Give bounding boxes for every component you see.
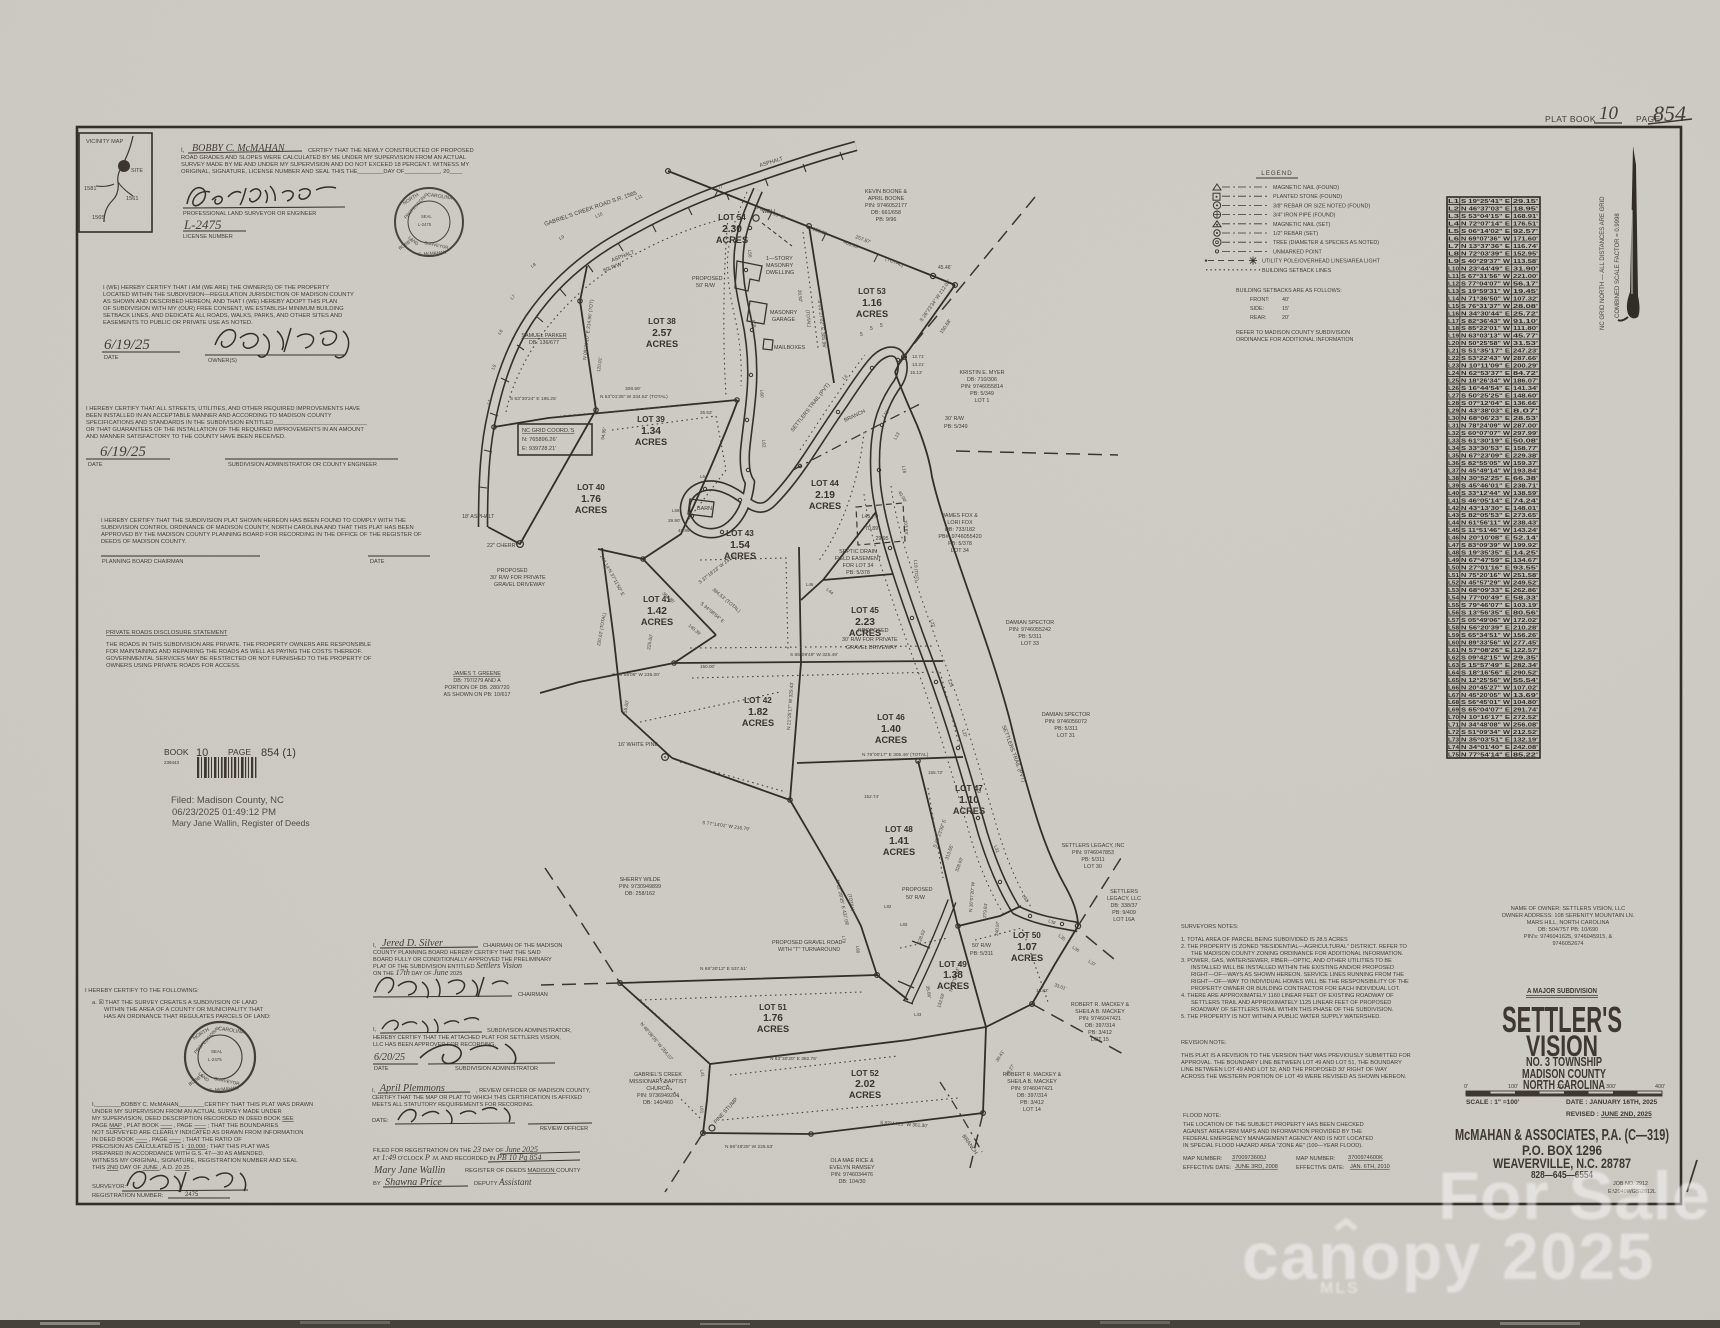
- svg-text:ACRES: ACRES: [575, 505, 607, 515]
- svg-text:LOT 30: LOT 30: [1084, 864, 1102, 870]
- svg-text:70.89': 70.89': [865, 526, 879, 532]
- svg-text:1.34: 1.34: [641, 426, 661, 437]
- svg-text:LOT 39: LOT 39: [637, 415, 665, 424]
- svg-text:PRECISION AS CALCULATED IS 1:: PRECISION AS CALCULATED IS 1: 10,000 ; T…: [92, 1144, 270, 1150]
- svg-text:BY: BY: [373, 1181, 381, 1187]
- svg-text:S 63°30'24" E 195.25': S 63°30'24" E 195.25': [510, 396, 557, 402]
- svg-text:1.82: 1.82: [748, 707, 768, 718]
- svg-text:LOT 52: LOT 52: [851, 1069, 879, 1078]
- svg-text:6/19/25: 6/19/25: [104, 337, 150, 353]
- svg-text:SURVEYORS NOTES:: SURVEYORS NOTES:: [1181, 924, 1239, 930]
- svg-text:L43: L43: [914, 1012, 922, 1017]
- svg-text:KRISTIN E. MYER: KRISTIN E. MYER: [960, 370, 1005, 376]
- svg-text:PLAT BOOK: PLAT BOOK: [1545, 114, 1596, 124]
- svg-text:Mary Jane Wallin, Register of: Mary Jane Wallin, Register of Deeds: [172, 818, 310, 828]
- svg-text:1.10: 1.10: [959, 795, 979, 806]
- svg-text:20': 20': [1282, 315, 1289, 321]
- svg-text:GARAGE: GARAGE: [772, 317, 795, 323]
- svg-text:SETTLERS TRAIL AND APPROXIMATE: SETTLERS TRAIL AND APPROXIMATELY 1125 LI…: [1191, 1000, 1391, 1006]
- svg-text:25.53': 25.53': [700, 410, 712, 415]
- svg-text:ACRES: ACRES: [641, 617, 673, 627]
- svg-text:DATE: DATE: [370, 559, 385, 565]
- svg-text:FRONT:: FRONT:: [1250, 297, 1269, 303]
- svg-text:DB: 397/314: DB: 397/314: [1017, 1093, 1047, 1099]
- svg-text:LOT 51: LOT 51: [759, 1003, 787, 1012]
- svg-text:L46: L46: [806, 582, 814, 587]
- svg-text:1/2" REBAR (SET): 1/2" REBAR (SET): [1273, 231, 1318, 237]
- svg-text:L61: L61: [699, 1106, 705, 1114]
- svg-text:1.54: 1.54: [730, 540, 750, 551]
- svg-text:WITHIN THE AREA OF A COUNTY OR: WITHIN THE AREA OF A COUNTY OR MUNICIPAL…: [104, 1007, 264, 1013]
- svg-text:APPROVAL. THE BOUNDARY LINE BE: APPROVAL. THE BOUNDARY LINE BETWEEN LOT …: [1181, 1060, 1402, 1066]
- svg-text:DB: 733/182: DB: 733/182: [945, 527, 975, 533]
- svg-text:LOT 49: LOT 49: [939, 960, 967, 969]
- svg-text:LOT 53: LOT 53: [858, 287, 886, 296]
- svg-text:PLANTED STONE (FOUND): PLANTED STONE (FOUND): [1273, 194, 1342, 200]
- svg-text:SHEILA B. MACKEY: SHEILA B. MACKEY: [1075, 1009, 1125, 1015]
- svg-text:50' R/W: 50' R/W: [906, 895, 926, 901]
- svg-text:REFER TO MADISON COUNTY SUBDIV: REFER TO MADISON COUNTY SUBDIVISION: [1236, 330, 1350, 336]
- svg-text:PIN: 9746056072: PIN: 9746056072: [1045, 719, 1087, 725]
- svg-text:PB: 5/349: PB: 5/349: [970, 391, 994, 397]
- svg-text:N 63°01'35" W 334.52' (TOTAL: N 63°01'35" W 334.52' (TOTAL): [600, 394, 668, 400]
- svg-text:LEGACY, LLC: LEGACY, LLC: [1107, 896, 1141, 902]
- svg-text:I (WE) HEREBY CERTIFY THAT I A: I (WE) HEREBY CERTIFY THAT I AM (WE ARE)…: [103, 285, 329, 291]
- svg-text:103.83': 103.83': [903, 520, 909, 535]
- svg-text:SPECIFICATIONS AND STANDARDS I: SPECIFICATIONS AND STANDARDS IN THE SUBD…: [86, 420, 368, 426]
- svg-text:PIN: 9746055242: PIN: 9746055242: [1009, 627, 1051, 633]
- svg-text:ROBERT R. MACKEY &: ROBERT R. MACKEY &: [1071, 1002, 1130, 1008]
- svg-text:ROADWAY OF SETTLERS TRAIL WITH: ROADWAY OF SETTLERS TRAIL WITHIN THIS PH…: [1191, 1007, 1394, 1013]
- svg-text:I,: I,: [372, 1088, 376, 1094]
- svg-text:PAGE MAP , PLAT BOOK —— , PAGE: PAGE MAP , PLAT BOOK —— , PAGE —— ; THAT…: [92, 1123, 278, 1129]
- svg-text:IN DEED BOOK —— , PAGE —— ; TH: IN DEED BOOK —— , PAGE —— ; THAT THE RAT…: [92, 1137, 242, 1143]
- svg-text:152.74': 152.74': [864, 794, 879, 799]
- svg-text:ROBERT R. MACKEY &: ROBERT R. MACKEY &: [1003, 1072, 1062, 1078]
- svg-text:150.00': 150.00': [700, 664, 715, 669]
- svg-text:ACRES: ACRES: [635, 437, 667, 447]
- svg-text:LOT 38: LOT 38: [648, 317, 676, 326]
- svg-text:PROPERTY OWNER OR BUILDING CON: PROPERTY OWNER OR BUILDING CONTRACTOR FO…: [1191, 986, 1400, 992]
- svg-text:ACRES: ACRES: [1011, 953, 1043, 963]
- svg-text:ACRES: ACRES: [883, 847, 915, 857]
- svg-text:SURVEY MADE BY ME AND UNDER MY: SURVEY MADE BY ME AND UNDER MY SUPERVISI…: [181, 162, 469, 168]
- svg-text:OWNER ADDRESS: 108 SERENITY MO: OWNER ADDRESS: 108 SERENITY MOUNTAIN LN.: [1502, 913, 1635, 919]
- svg-text:MAGNETIC NAIL (SET): MAGNETIC NAIL (SET): [1273, 222, 1331, 228]
- svg-text:50' R/W: 50' R/W: [696, 283, 716, 289]
- svg-text:1.41: 1.41: [889, 836, 909, 847]
- svg-text:300': 300': [1606, 1084, 1616, 1090]
- svg-text:2.57: 2.57: [652, 328, 672, 339]
- svg-text:LOT 15: LOT 15: [1091, 1037, 1109, 1043]
- svg-text:DB: 136/677: DB: 136/677: [529, 340, 559, 346]
- svg-text:SCALE : 1" =100': SCALE : 1" =100': [1466, 1099, 1520, 1106]
- svg-text:E: 939728.21': E: 939728.21': [522, 446, 556, 452]
- svg-text:CHAIRMAN: CHAIRMAN: [518, 992, 548, 998]
- svg-text:45.46': 45.46': [938, 265, 952, 271]
- svg-text:FOR MAINTAINING AND REPAIRING: FOR MAINTAINING AND REPAIRING THE ROADS …: [106, 649, 362, 655]
- svg-text:LOT 45: LOT 45: [851, 606, 879, 615]
- svg-text:SEAL: SEAL: [421, 214, 432, 219]
- svg-text:SUBDIVISION ADMINISTRATOR: SUBDIVISION ADMINISTRATOR: [455, 1066, 538, 1072]
- svg-text:DWELLING: DWELLING: [766, 270, 794, 276]
- svg-text:I HEREBY CERTIFY TO THE FOLLOW: I HEREBY CERTIFY TO THE FOLLOWING:: [85, 988, 199, 994]
- svg-text:PB: 9/96: PB: 9/96: [876, 217, 897, 223]
- svg-text:DB: 397/314: DB: 397/314: [1085, 1023, 1115, 1029]
- svg-text:GRAVEL DRIVEWAY: GRAVEL DRIVEWAY: [846, 645, 897, 651]
- svg-text:REAR:: REAR:: [1250, 315, 1266, 321]
- svg-text:4. THERE ARE APPROXIMATELY 11: 4. THERE ARE APPROXIMATELY 1160 LINEAR F…: [1181, 993, 1394, 999]
- svg-text:PB: 5/378: PB: 5/378: [846, 570, 870, 576]
- svg-text:3700973600J: 3700973600J: [1232, 1155, 1266, 1161]
- svg-text:I,: I,: [181, 148, 185, 154]
- svg-text:LOT 1: LOT 1: [975, 398, 990, 404]
- svg-text:FEDERAL EMERGENCY MANAGEMENT A: FEDERAL EMERGENCY MANAGEMENT AGENCY AND …: [1183, 1136, 1373, 1142]
- svg-text:MASONRY: MASONRY: [770, 310, 798, 316]
- svg-text:3. POWER, GAS, WATER/SEWER, F: 3. POWER, GAS, WATER/SEWER, FIBER—OPTIC,…: [1181, 958, 1392, 964]
- svg-text:LINE BETWEEN LOT 49 AND LOT 52: LINE BETWEEN LOT 49 AND LOT 52, AND THE …: [1181, 1067, 1387, 1073]
- svg-text:N 63°30'20" E 382.76': N 63°30'20" E 382.76': [770, 1056, 817, 1062]
- svg-text:JAMES T. GREENE: JAMES T. GREENE: [453, 671, 501, 677]
- svg-text:BEEN INSTALLED IN AN ACCEPTABL: BEEN INSTALLED IN AN ACCEPTABLE MANNER A…: [86, 413, 332, 419]
- svg-text:BARN: BARN: [697, 506, 712, 512]
- svg-text:DAMIAN SPECTOR: DAMIAN SPECTOR: [1006, 620, 1055, 626]
- svg-text:Filed: Madison County, NC: Filed: Madison County, NC: [171, 795, 284, 806]
- svg-text:SHEILA B. MACKEY: SHEILA B. MACKEY: [1007, 1079, 1057, 1085]
- svg-text:MAGNETIC NAIL (FOUND): MAGNETIC NAIL (FOUND): [1273, 185, 1339, 191]
- svg-text:ORDINANCE FOR ADDITIONAL INFOR: ORDINANCE FOR ADDITIONAL INFORMATION: [1236, 337, 1354, 343]
- svg-text:2475: 2475: [185, 1192, 199, 1198]
- svg-text:PAGE: PAGE: [228, 747, 251, 757]
- svg-text:UNMARKED POINT: UNMARKED POINT: [1273, 249, 1323, 255]
- svg-text:L83: L83: [900, 922, 908, 927]
- svg-text:3/8" REBAR OR SIZE NOTED (FOUN: 3/8" REBAR OR SIZE NOTED (FOUND): [1273, 203, 1370, 209]
- svg-text:RIGHT—OF—WAYS AS SHOWN HEREON: RIGHT—OF—WAYS AS SHOWN HEREON. SERVICE L…: [1191, 972, 1404, 978]
- svg-text:SURVEYOR:: SURVEYOR:: [92, 1184, 126, 1190]
- svg-text:PROPOSED: PROPOSED: [902, 887, 933, 893]
- svg-text:239443: 239443: [164, 760, 180, 765]
- svg-text:6/20/25: 6/20/25: [374, 1052, 405, 1063]
- svg-text:JUNE 3RD, 2008: JUNE 3RD, 2008: [1235, 1164, 1278, 1170]
- svg-text:ACRES: ACRES: [953, 806, 985, 816]
- svg-text:LOT 42: LOT 42: [744, 696, 772, 705]
- svg-text:FOR LOT 34: FOR LOT 34: [843, 563, 874, 569]
- svg-text:HEREBY CERTIFY THAT THE ATTACH: HEREBY CERTIFY THAT THE ATTACHED PLAT FO…: [373, 1035, 561, 1041]
- svg-text:SEAL: SEAL: [211, 1049, 223, 1054]
- svg-text:L80: L80: [855, 946, 861, 954]
- svg-text:PROPOSED GRAVEL ROAD: PROPOSED GRAVEL ROAD: [772, 940, 843, 946]
- svg-text:30' R/W FOR PRIVATE: 30' R/W FOR PRIVATE: [842, 637, 898, 643]
- svg-text:LICENSE NUMBER: LICENSE NUMBER: [183, 234, 233, 240]
- svg-text:06/23/2025 01:49:12 PM: 06/23/2025 01:49:12 PM: [172, 807, 276, 818]
- svg-text:L75: L75: [1448, 753, 1459, 759]
- svg-text:LOT 44: LOT 44: [811, 479, 839, 488]
- svg-text:OF SUBDIVISION WITH MY (OUR) F: OF SUBDIVISION WITH MY (OUR) FREE CONSEN…: [103, 306, 344, 312]
- svg-text:DB: 661/658: DB: 661/658: [871, 210, 901, 216]
- svg-text:N 86°48'25" W 225.53': N 86°48'25" W 225.53': [725, 1144, 773, 1150]
- svg-text:PIN's: 9746041625, 9746045915,: PIN's: 9746041625, 9746045915, &: [1524, 934, 1613, 940]
- svg-text:LOT 40: LOT 40: [577, 483, 605, 492]
- svg-text:COMBINED SCALE FACTOR = 0.99: COMBINED SCALE FACTOR = 0.9998: [1615, 213, 1621, 318]
- svg-text:LOT 34: LOT 34: [951, 548, 969, 554]
- svg-text:THE MADISON COUNTY ZONING ORDI: THE MADISON COUNTY ZONING ORDINANCE FOR …: [1191, 951, 1404, 957]
- svg-text:L62: L62: [761, 440, 767, 449]
- svg-text:canopy 2025: canopy 2025: [1242, 1219, 1655, 1293]
- svg-text:LOT 48: LOT 48: [885, 825, 913, 834]
- svg-text:L45 (T): L45 (T): [862, 514, 879, 520]
- svg-text:KEVIN BOONE &: KEVIN BOONE &: [865, 189, 908, 195]
- svg-text:THE LOCATION OF THE SUBJECT PR: THE LOCATION OF THE SUBJECT PROPERTY HAS…: [1183, 1122, 1364, 1128]
- svg-text:N 68°30'13" E 537.51': N 68°30'13" E 537.51': [700, 966, 747, 972]
- svg-text:22" CHERRY: 22" CHERRY: [487, 543, 519, 549]
- svg-text:PB: 9/409: PB: 9/409: [1112, 910, 1136, 916]
- svg-text:5. THE PROPERTY IS NOT WITHIN: 5. THE PROPERTY IS NOT WITHIN A PUBLIC W…: [1181, 1014, 1381, 1020]
- svg-text:FIELD EASEMENT: FIELD EASEMENT: [835, 556, 882, 562]
- svg-text:Mary Jane Wallin: Mary Jane Wallin: [373, 1165, 445, 1176]
- svg-text:CERTIFY THAT THE NEWLY CONSTRU: CERTIFY THAT THE NEWLY CONSTRUCTED OF PR…: [308, 148, 474, 154]
- svg-text:LOT 16A: LOT 16A: [1113, 917, 1135, 923]
- svg-text:HAS AN ORDINANCE THAT REGULATE: HAS AN ORDINANCE THAT REGULATES PARCELS …: [104, 1014, 271, 1020]
- svg-text:MAP NUMBER:: MAP NUMBER:: [1183, 1156, 1223, 1162]
- svg-text:EASEMENTS TO PUBLIC OR PRIVATE: EASEMENTS TO PUBLIC OR PRIVATE USE AS NO…: [103, 320, 253, 326]
- svg-text:29.90': 29.90': [668, 518, 680, 523]
- svg-text:400': 400': [1655, 1084, 1665, 1090]
- svg-text:AGAINST AREA FIRM MAPS AND INF: AGAINST AREA FIRM MAPS AND INFORMATION P…: [1183, 1129, 1362, 1135]
- svg-text:10: 10: [1599, 103, 1619, 124]
- svg-text:L60: L60: [759, 390, 765, 399]
- svg-text:ACRES: ACRES: [646, 339, 678, 349]
- svg-text:5: 5: [870, 326, 873, 332]
- svg-text:LOT 54: LOT 54: [718, 213, 746, 222]
- svg-text:DB: 258/162: DB: 258/162: [625, 891, 655, 897]
- svg-text:THIS 2ND DAY OF JUNE: THIS 2ND DAY OF JUNE , A.D. 20 25 .: [92, 1165, 193, 1171]
- svg-text:PB: 5/349: PB: 5/349: [944, 424, 968, 430]
- svg-text:PROPOSED: PROPOSED: [692, 276, 723, 282]
- svg-text:PIN: 9746052177: PIN: 9746052177: [865, 203, 907, 209]
- svg-text:MISSIONARY BAPTIST: MISSIONARY BAPTIST: [629, 1079, 687, 1085]
- svg-text:DEEDS OF MADISON COUNTY.: DEEDS OF MADISON COUNTY.: [101, 539, 187, 545]
- svg-text:, REVIEW OFFICER OF MADISON CO: , REVIEW OFFICER OF MADISON COUNTY,: [476, 1088, 591, 1094]
- svg-text:PIN: 9746055814: PIN: 9746055814: [961, 384, 1003, 390]
- svg-text:1—STORY: 1—STORY: [766, 256, 793, 262]
- svg-text:1.40: 1.40: [881, 724, 901, 735]
- svg-text:ACRES: ACRES: [742, 718, 774, 728]
- svg-text:1581: 1581: [84, 186, 96, 192]
- svg-text:13.21': 13.21': [912, 362, 924, 367]
- svg-text:DAMIAN SPECTOR: DAMIAN SPECTOR: [1042, 712, 1091, 718]
- svg-text:2. THE PROPERTY IS ZONED "RES: 2. THE PROPERTY IS ZONED "RESIDENTIAL—AG…: [1181, 944, 1408, 950]
- svg-text:I,________BOBBY C. McMAHAN____: I,________BOBBY C. McMAHAN________CERTIF…: [92, 1102, 313, 1108]
- svg-text:EFFECTIVE DATE:: EFFECTIVE DATE:: [1183, 1165, 1232, 1171]
- svg-text:18' ASPHALT: 18' ASPHALT: [462, 514, 495, 520]
- svg-text:2.30: 2.30: [722, 224, 742, 235]
- svg-text:ACRES: ACRES: [856, 309, 888, 319]
- svg-text:LEGEND: LEGEND: [1261, 170, 1292, 177]
- svg-text:16' WHITE PINE: 16' WHITE PINE: [618, 742, 658, 748]
- svg-text:85.22': 85.22': [1513, 753, 1539, 759]
- svg-text:OLA MAE RICE &: OLA MAE RICE &: [830, 1158, 874, 1164]
- svg-text:2.19: 2.19: [815, 490, 835, 501]
- svg-text:DB: 710/306: DB: 710/306: [967, 377, 997, 383]
- svg-text:NAME OF OWNER: SETTLERS VISION: NAME OF OWNER: SETTLERS VISION, LLC: [1511, 906, 1625, 912]
- svg-text:EFFECTIVE DATE:: EFFECTIVE DATE:: [1296, 1165, 1345, 1171]
- svg-text:PB: 5/311: PB: 5/311: [970, 951, 993, 957]
- svg-text:308.59': 308.59': [625, 386, 641, 392]
- svg-text:5: 5: [860, 332, 863, 338]
- svg-text:5: 5: [880, 323, 883, 329]
- svg-text:DATE:: DATE:: [372, 1118, 389, 1124]
- svg-text:THE ROADS IN THIS SUBDIVISION: THE ROADS IN THIS SUBDIVISION ARE PRIVAT…: [106, 642, 371, 648]
- svg-text:1. TOTAL AREA OF PARCEL BEING: 1. TOTAL AREA OF PARCEL BEING SUBDIVIDED…: [1181, 937, 1348, 943]
- svg-text:I HEREBY CERTIFY THAT ALL STRE: I HEREBY CERTIFY THAT ALL STREETS, UTILI…: [86, 406, 360, 412]
- svg-text:MARS HILL, NORTH CAROLINA: MARS HILL, NORTH CAROLINA: [1527, 920, 1610, 926]
- svg-text:THIS PLAT IS A REVISION TO THE: THIS PLAT IS A REVISION TO THE VERSION T…: [1181, 1053, 1411, 1059]
- svg-text:DATE : JANUARY 16TH, 2025: DATE : JANUARY 16TH, 2025: [1566, 1099, 1657, 1106]
- svg-text:NOT SURVEYED ARE CLEARLY INDIC: NOT SURVEYED ARE CLEARLY INDICATED AS DR…: [92, 1130, 303, 1136]
- svg-text:30' R/W: 30' R/W: [945, 416, 965, 422]
- svg-text:L58: L58: [751, 320, 757, 329]
- svg-text:SUBDIVISION ADMINISTRATOR,: SUBDIVISION ADMINISTRATOR,: [487, 1028, 572, 1034]
- svg-text:NC GRID COORD.'S: NC GRID COORD.'S: [522, 428, 575, 434]
- svg-text:LOCATED WITHIN THE SUBDIVISION: LOCATED WITHIN THE SUBDIVISION—REGULATIO…: [103, 292, 354, 298]
- svg-text:L-2475: L-2475: [183, 217, 222, 232]
- svg-text:DATE: DATE: [374, 1066, 389, 1072]
- svg-text:6/19/25: 6/19/25: [100, 444, 146, 460]
- svg-text:N: 765896.26': N: 765896.26': [522, 437, 557, 443]
- svg-text:ACRES: ACRES: [849, 1090, 881, 1100]
- svg-text:I,: I,: [373, 943, 377, 949]
- svg-text:I,: I,: [373, 1027, 377, 1033]
- svg-text:CERTIFY THAT THE MAP OR PLAT T: CERTIFY THAT THE MAP OR PLAT TO WHICH TH…: [372, 1095, 582, 1101]
- svg-text:PORTION OF DB. 280/720: PORTION OF DB. 280/720: [445, 685, 510, 691]
- svg-text:SIDE:: SIDE:: [1250, 306, 1264, 312]
- svg-text:OWNERS USING PRIVATE ROADS FOR: OWNERS USING PRIVATE ROADS FOR ACCESS.: [106, 663, 241, 669]
- svg-text:L56: L56: [747, 250, 753, 259]
- svg-text:ACROSS THE WESTERN PORTION OF: ACROSS THE WESTERN PORTION OF LOT 49 WER…: [1181, 1074, 1407, 1080]
- svg-text:13.82': 13.82': [1036, 988, 1048, 993]
- svg-text:PB: 5/378: PB: 5/378: [948, 541, 972, 547]
- svg-text:VICINITY MAP: VICINITY MAP: [86, 139, 123, 145]
- svg-text:PB: 5/311: PB: 5/311: [1054, 726, 1077, 732]
- svg-text:1565: 1565: [92, 215, 104, 221]
- svg-text:JAMES FOX &: JAMES FOX &: [942, 513, 978, 519]
- svg-text:GABRIEL'S CREEK: GABRIEL'S CREEK: [634, 1072, 682, 1078]
- svg-text:FLOOD NOTE:: FLOOD NOTE:: [1183, 1113, 1221, 1119]
- svg-text:1.42: 1.42: [647, 606, 667, 617]
- svg-text:15.13': 15.13': [910, 370, 922, 375]
- svg-text:EVELYN RAMSEY: EVELYN RAMSEY: [829, 1165, 875, 1171]
- svg-text:S 85°09'49" W 325.49': S 85°09'49" W 325.49': [790, 652, 838, 658]
- svg-text:WITH "T" TURNAROUND: WITH "T" TURNAROUND: [778, 947, 840, 953]
- svg-text:1.16: 1.16: [862, 298, 882, 309]
- svg-text:200': 200': [1557, 1084, 1567, 1090]
- svg-text:PRIVATE ROADS DISCLOSURE STATE: PRIVATE ROADS DISCLOSURE STATEMENT: [106, 630, 228, 636]
- svg-text:L-2475: L-2475: [208, 1057, 222, 1062]
- svg-text:APPROVED BY THE MADISON COUNTY: APPROVED BY THE MADISON COUNTY PLANNING …: [101, 532, 422, 538]
- svg-text:OWNER(S): OWNER(S): [208, 358, 237, 364]
- svg-text:ACRES: ACRES: [716, 235, 748, 245]
- svg-text:PROPOSED: PROPOSED: [858, 628, 889, 634]
- svg-text:PIN: 9746047421: PIN: 9746047421: [1011, 1086, 1053, 1092]
- svg-text:L66: L66: [672, 508, 680, 513]
- svg-text:MAP NUMBER:: MAP NUMBER:: [1296, 1156, 1336, 1162]
- svg-text:PIN: 9746047853: PIN: 9746047853: [1072, 850, 1114, 856]
- svg-text:MLS: MLS: [1320, 1280, 1360, 1297]
- svg-text:LOT 50: LOT 50: [1013, 931, 1041, 940]
- svg-text:REVISED : JUNE 2ND, 2025: REVISED : JUNE 2ND, 2025: [1566, 1111, 1652, 1118]
- svg-text:DB: 140/460: DB: 140/460: [643, 1100, 673, 1106]
- svg-text:I HEREBY CERTIFY THAT THE SUBD: I HEREBY CERTIFY THAT THE SUBDIVISION PL…: [101, 518, 406, 524]
- svg-text:CHURCH: CHURCH: [646, 1086, 669, 1092]
- svg-text:DATE: DATE: [104, 355, 119, 361]
- svg-text:WITNESS MY ORIGINAL, SIGNATURE: WITNESS MY ORIGINAL, SIGNATURE, REGISTRA…: [92, 1158, 298, 1164]
- svg-text:SUBDIVISION ADMINISTRATOR OR C: SUBDIVISION ADMINISTRATOR OR COUNTY ENGI…: [228, 462, 377, 468]
- svg-text:PB: 3/412: PB: 3/412: [1088, 1030, 1112, 1036]
- svg-text:1.07: 1.07: [1017, 942, 1037, 953]
- svg-text:DB: 504/757 PB: 10/690: DB: 504/757 PB: 10/690: [1538, 927, 1598, 933]
- svg-text:DATE: DATE: [88, 462, 103, 468]
- svg-text:JAN. 6TH, 2010: JAN. 6TH, 2010: [1350, 1164, 1390, 1170]
- svg-text:L82: L82: [884, 904, 892, 909]
- svg-text:SETTLERS LEGACY, INC: SETTLERS LEGACY, INC: [1062, 843, 1125, 849]
- svg-text:L-2475: L-2475: [418, 222, 432, 227]
- svg-text:ACRES: ACRES: [757, 1024, 789, 1034]
- svg-text:2.02: 2.02: [855, 1079, 875, 1090]
- svg-text:OR THAT GUARANTEES OF THE INST: OR THAT GUARANTEES OF THE INSTALLATION O…: [86, 427, 364, 433]
- svg-text:REVIEW OFFICER: REVIEW OFFICER: [540, 1126, 588, 1132]
- svg-text:RIGHT—OF—WAY TO INDIVIDUAL HOM: RIGHT—OF—WAY TO INDIVIDUAL HOMES WILL BE…: [1191, 979, 1409, 985]
- svg-text:SETBACK LINES, AND DEDICATE AL: SETBACK LINES, AND DEDICATE ALL ROADS, W…: [103, 313, 342, 319]
- svg-text:ACRES: ACRES: [809, 501, 841, 511]
- svg-text:BUILDING SETBACK LINES: BUILDING SETBACK LINES: [1262, 268, 1332, 274]
- svg-text:CHAIRMAN OF THE MADISON: CHAIRMAN OF THE MADISON: [483, 943, 562, 949]
- svg-text:a. ☒ THAT THE SURVEY CREATES A: a. ☒ THAT THE SURVEY CREATES A SUBDIVISI…: [92, 999, 257, 1006]
- svg-text:A MAJOR SUBDIVISION: A MAJOR SUBDIVISION: [1527, 986, 1597, 995]
- svg-text:REGISTRATION NUMBER:: REGISTRATION NUMBER:: [92, 1193, 164, 1199]
- svg-text:SITE: SITE: [131, 168, 143, 174]
- svg-text:ROAD GRADES AND SLOPES WERE CA: ROAD GRADES AND SLOPES WERE CALCULATED B…: [181, 155, 467, 161]
- svg-text:REVISION NOTE:: REVISION NOTE:: [1181, 1040, 1227, 1046]
- svg-text:3/4" IRON PIPE (FOUND): 3/4" IRON PIPE (FOUND): [1273, 213, 1336, 219]
- svg-text:BOOK: BOOK: [164, 747, 189, 757]
- svg-text:ACRES: ACRES: [875, 735, 907, 745]
- svg-text:3700974600K: 3700974600K: [1348, 1155, 1383, 1161]
- svg-text:2.23: 2.23: [855, 617, 875, 628]
- svg-text:GOVERNMENTAL SERVICES MAY BE R: GOVERNMENTAL SERVICES MAY BE RESTRICTED …: [106, 656, 372, 662]
- svg-text:9746052674: 9746052674: [1552, 941, 1583, 947]
- svg-text:DB: 797/279 AND A: DB: 797/279 AND A: [453, 678, 501, 684]
- svg-text:N 79°00'17" E 305.46' (TOTAL: N 79°00'17" E 305.46' (TOTAL): [862, 752, 929, 758]
- svg-text:APRIL BOONE: APRIL BOONE: [868, 196, 905, 202]
- svg-text:PIN: 9730949899: PIN: 9730949899: [619, 884, 661, 890]
- svg-text:COUNTY PLANNING BOARD HEREBY C: COUNTY PLANNING BOARD HEREBY CERTIFY THA…: [373, 950, 541, 956]
- svg-text:DB: 338/37: DB: 338/37: [1111, 903, 1138, 909]
- svg-text:UNDER MY SUPERVISION FROM AN A: UNDER MY SUPERVISION FROM AN ACTUAL SURV…: [92, 1109, 282, 1115]
- svg-text:SUBDIVISION CONTROL ORDINANCE: SUBDIVISION CONTROL ORDINANCE OF MADISON…: [101, 525, 414, 531]
- svg-text:PB: 5/311: PB: 5/311: [1018, 634, 1041, 640]
- svg-text:PIN: 9746034476: PIN: 9746034476: [831, 1172, 873, 1178]
- svg-text:12.71': 12.71': [912, 354, 924, 359]
- svg-text:30' R/W FOR PRIVATE: 30' R/W FOR PRIVATE: [490, 575, 546, 581]
- svg-text:L64: L64: [700, 474, 708, 479]
- svg-text:INSTALLED WILL BE INSTALLED WI: INSTALLED WILL BE INSTALLED WITHIN THE E…: [1191, 965, 1394, 971]
- svg-text:PIN: 9736949204: PIN: 9736949204: [637, 1093, 679, 1099]
- svg-text:MEETS ALL STATUTORY REQUIREMEN: MEETS ALL STATUTORY REQUIREMENTS FOR REC…: [372, 1102, 534, 1108]
- svg-text:1.76: 1.76: [763, 1013, 783, 1024]
- svg-text:PLANNING BOARD CHAIRMAN: PLANNING BOARD CHAIRMAN: [102, 559, 183, 565]
- svg-text:29.95: 29.95: [876, 536, 889, 542]
- svg-text:40': 40': [1282, 297, 1289, 303]
